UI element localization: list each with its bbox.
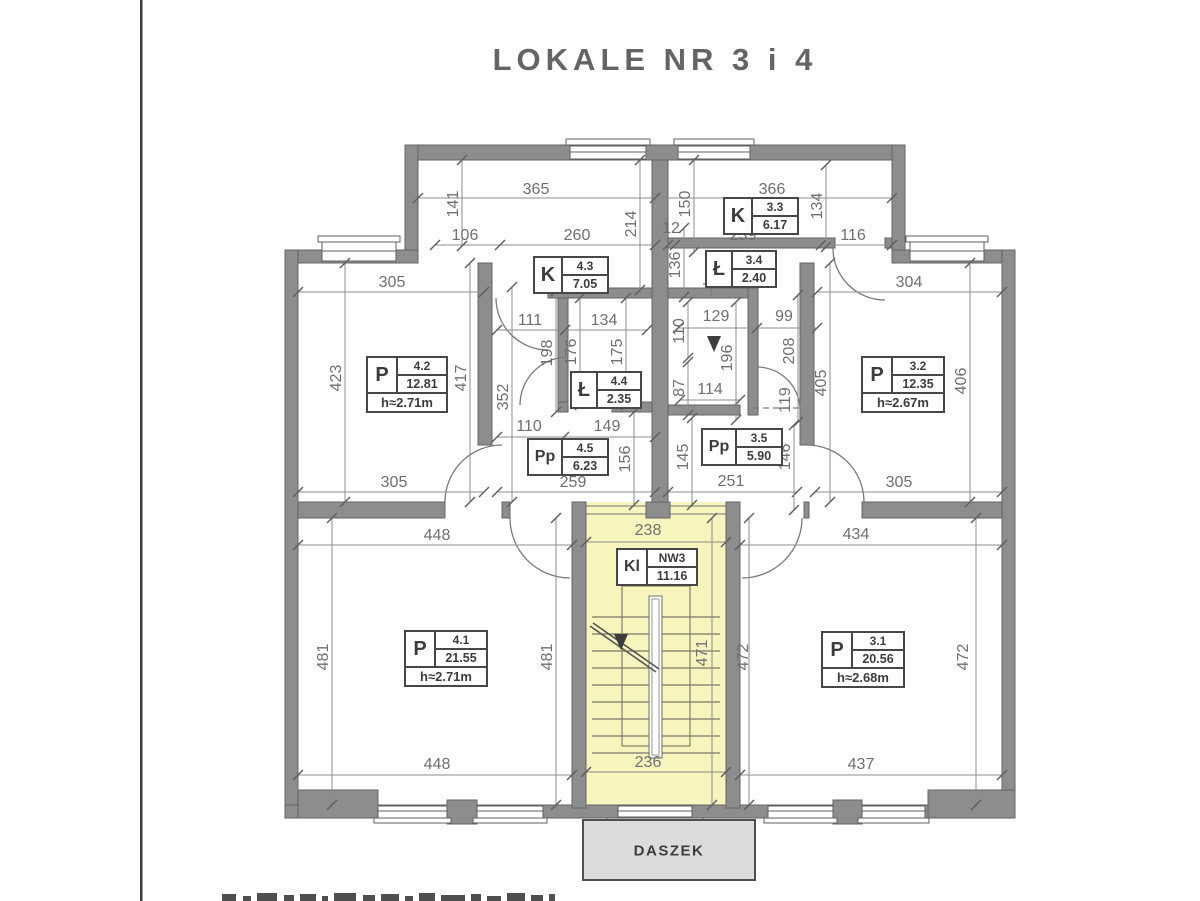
dimension-label: 305	[381, 475, 408, 491]
dimension-label: 448	[424, 757, 451, 773]
room-area: 6.23	[563, 458, 607, 474]
dimension-label: 352	[496, 384, 512, 411]
canopy-label: DASZEK	[634, 843, 705, 860]
room-height: h≈2.68m	[823, 667, 903, 686]
dimension-label: 110	[516, 419, 542, 435]
page-title: LOKALE NR 3 i 4	[493, 42, 818, 78]
dimension-label: 437	[848, 757, 875, 773]
room-label: Ł4.42.35	[570, 371, 642, 409]
floor-plan-page: LOKALE NR 3 i 4 365366141106260214121502…	[0, 0, 1200, 901]
dimension-label: 134	[810, 193, 826, 220]
dimension-label: 150	[678, 191, 694, 218]
dimension-label: 129	[703, 309, 730, 325]
dimension-label: 472	[736, 644, 752, 671]
dimension-label: 110	[672, 318, 688, 344]
dimension-label: 106	[452, 228, 479, 244]
room-number: 4.5	[563, 440, 607, 458]
room-area: 21.55	[436, 650, 486, 666]
dimension-label: 119	[778, 387, 794, 413]
room-number: 3.5	[737, 430, 781, 448]
dimension-label: 136	[668, 252, 684, 279]
room-code: P	[823, 633, 853, 667]
room-code: Kl	[618, 550, 648, 584]
room-height: h≈2.67m	[863, 392, 943, 411]
dimension-label: 481	[316, 644, 332, 671]
dimension-label: 175	[610, 339, 626, 366]
dimension-label: 423	[329, 365, 345, 392]
room-label: Ł3.42.40	[705, 250, 777, 288]
stair-stringer	[649, 596, 662, 758]
room-area: 2.35	[598, 391, 640, 407]
dimension-label: 12	[662, 221, 680, 237]
dimension-label: 196	[720, 345, 736, 372]
room-number: 3.3	[753, 199, 797, 217]
dimension-label: 87	[672, 379, 688, 397]
dimension-label: 366	[759, 182, 786, 198]
dimension-label: 251	[718, 474, 745, 490]
room-area: 6.17	[753, 217, 797, 233]
room-number: 4.3	[563, 258, 607, 276]
room-number: 4.1	[436, 632, 486, 650]
room-code: P	[368, 358, 398, 392]
room-label: K4.37.05	[533, 256, 609, 294]
room-label: K3.36.17	[723, 197, 799, 235]
dimension-label: 304	[896, 275, 923, 291]
room-code: K	[535, 258, 563, 292]
dimension-label: 405	[814, 370, 830, 397]
room-number: 4.2	[398, 358, 446, 376]
dimension-label: 116	[840, 228, 866, 244]
room-label: Pp4.56.23	[527, 438, 609, 476]
room-code: P	[406, 632, 436, 666]
dimension-label: 259	[560, 475, 587, 491]
room-label: P4.121.55h≈2.71m	[404, 630, 488, 687]
dimension-label: 236	[635, 755, 662, 771]
room-code: Ł	[572, 373, 598, 407]
cropped-text-artifact	[222, 893, 555, 901]
dimension-label: 134	[591, 313, 618, 329]
dimension-label: 208	[782, 338, 798, 365]
room-code: K	[725, 199, 753, 233]
dimension-label: 214	[624, 211, 640, 238]
room-area: 12.35	[893, 376, 943, 392]
room-number: 3.4	[733, 252, 775, 270]
room-label: P4.212.81h≈2.71m	[366, 356, 448, 413]
room-label: KlNW311.16	[616, 548, 698, 586]
dimension-label: 305	[379, 275, 406, 291]
room-number: NW3	[648, 550, 696, 568]
room-area: 11.16	[648, 568, 696, 584]
room-label: P3.120.56h≈2.68m	[821, 631, 905, 688]
dimension-label: 99	[775, 309, 793, 325]
room-number: 3.1	[853, 633, 903, 651]
room-label: P3.212.35h≈2.67m	[861, 356, 945, 413]
frame-line	[140, 0, 143, 901]
dimension-label: 111	[518, 313, 542, 329]
room-area: 12.81	[398, 376, 446, 392]
dimension-label: 471	[695, 640, 711, 667]
room-height: h≈2.71m	[406, 666, 486, 685]
room-area: 5.90	[737, 448, 781, 464]
dimension-label: 305	[886, 475, 913, 491]
dimension-label: 149	[594, 419, 621, 435]
dimension-label: 448	[424, 528, 451, 544]
dimension-label: 145	[676, 444, 692, 471]
room-label: Pp3.55.90	[701, 428, 783, 466]
dimension-label: 434	[843, 527, 870, 543]
dimension-label: 198	[540, 340, 556, 367]
dimension-label: 365	[523, 182, 550, 198]
room-area: 20.56	[853, 651, 903, 667]
dimension-label: 472	[956, 644, 972, 671]
room-number: 3.2	[893, 358, 943, 376]
room-code: Pp	[529, 440, 563, 474]
dimension-label: 238	[635, 523, 662, 539]
dimension-label: 260	[564, 228, 591, 244]
dimension-label: 114	[697, 382, 723, 398]
dimension-label: 481	[540, 644, 556, 671]
dimension-label: 406	[954, 368, 970, 395]
dimension-label: 141	[446, 191, 462, 218]
room-code: P	[863, 358, 893, 392]
dimension-label: 156	[618, 446, 634, 473]
room-area: 2.40	[733, 270, 775, 286]
room-height: h≈2.71m	[368, 392, 446, 411]
room-code: Pp	[703, 430, 737, 464]
room-area: 7.05	[563, 276, 607, 292]
room-number: 4.4	[598, 373, 640, 391]
dimension-label: 417	[454, 365, 470, 392]
dimension-label: 176	[564, 339, 580, 366]
room-code: Ł	[707, 252, 733, 286]
